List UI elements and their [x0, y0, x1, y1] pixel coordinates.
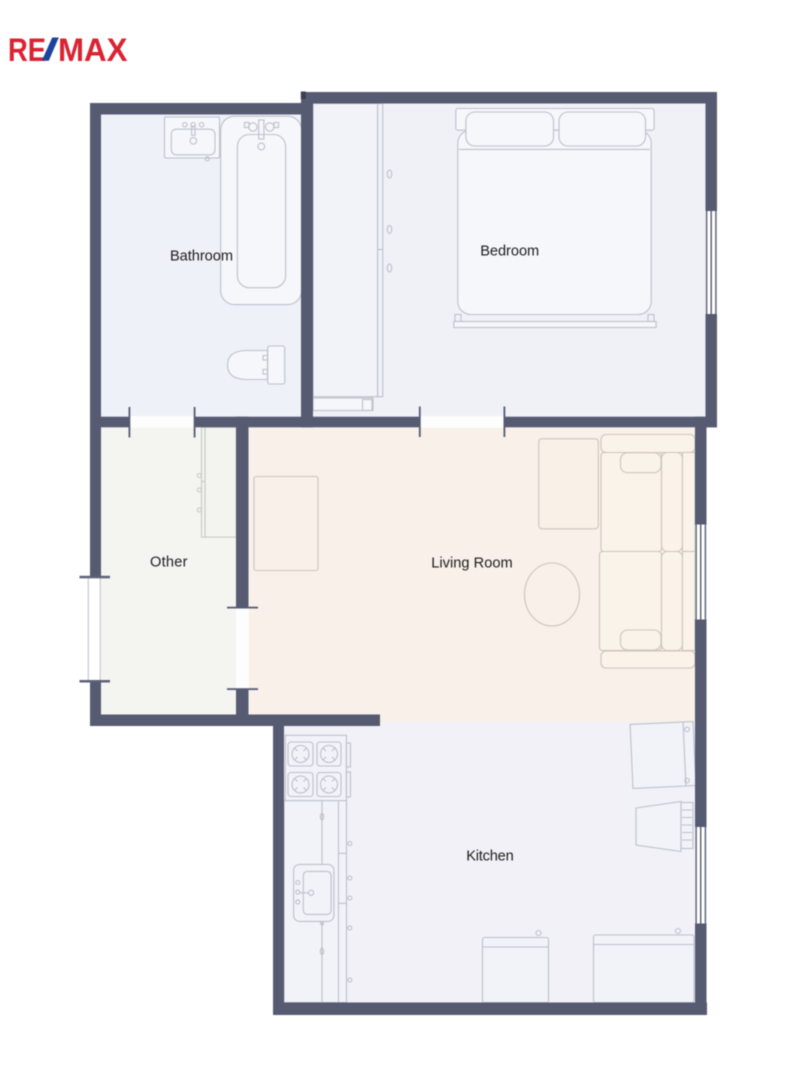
- svg-text:Other: Other: [150, 555, 188, 571]
- svg-text:Bedroom: Bedroom: [480, 243, 539, 259]
- svg-text:Living Room: Living Room: [431, 556, 513, 572]
- svg-text:Bathroom: Bathroom: [170, 249, 233, 265]
- svg-text:RE: RE: [8, 32, 46, 68]
- svg-text:MAX: MAX: [58, 32, 128, 68]
- svg-text:Kitchen: Kitchen: [466, 849, 514, 865]
